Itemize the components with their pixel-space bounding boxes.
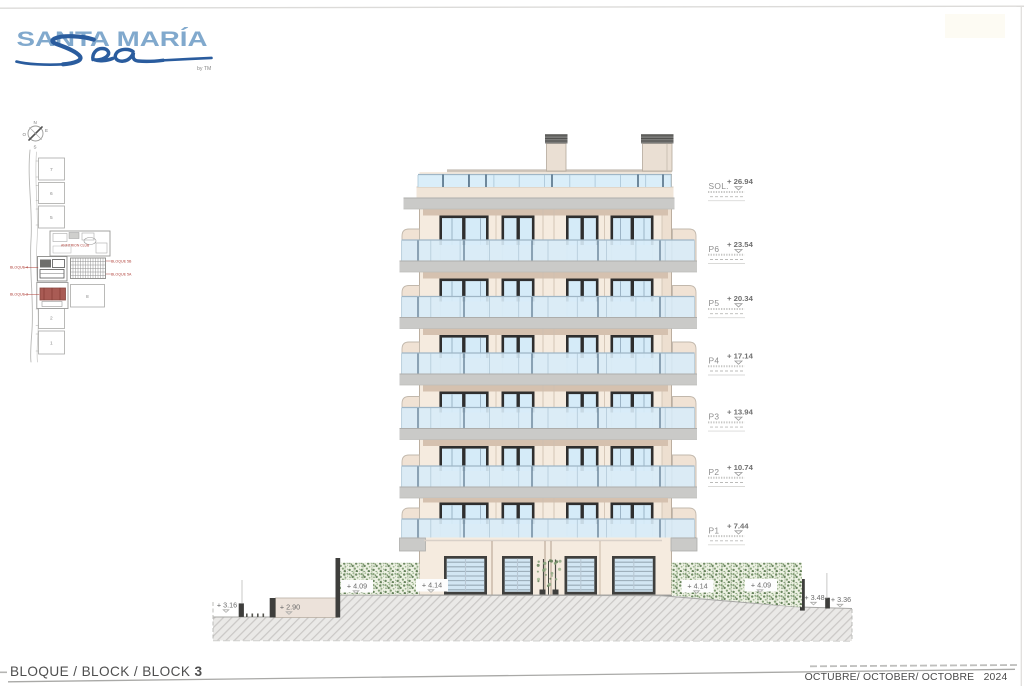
svg-text:+ 3.16: + 3.16 bbox=[217, 601, 237, 610]
svg-text:BLOQUE 3: BLOQUE 3 bbox=[10, 293, 28, 297]
svg-text:O: O bbox=[23, 132, 27, 137]
svg-text:P3: P3 bbox=[709, 412, 720, 422]
svg-text:7: 7 bbox=[50, 167, 53, 173]
svg-text:SANTA MARÍA: SANTA MARÍA bbox=[17, 26, 208, 51]
svg-text:5: 5 bbox=[50, 215, 53, 221]
svg-text:+ 3.48: + 3.48 bbox=[804, 593, 824, 602]
svg-text:N: N bbox=[34, 120, 37, 125]
svg-text:by TM: by TM bbox=[197, 66, 211, 72]
svg-text:+ 4.09: + 4.09 bbox=[751, 581, 771, 590]
svg-text:+ 4.14: + 4.14 bbox=[422, 581, 442, 590]
svg-text:+ 10.74: + 10.74 bbox=[727, 463, 754, 472]
svg-text:+ 2.90: + 2.90 bbox=[280, 603, 300, 612]
svg-text:P1: P1 bbox=[709, 525, 720, 535]
svg-text:P6: P6 bbox=[709, 244, 720, 254]
svg-text:P4: P4 bbox=[709, 356, 720, 366]
svg-text:P5: P5 bbox=[709, 298, 720, 308]
svg-text:+ 20.34: + 20.34 bbox=[727, 294, 754, 303]
svg-text:BLOQUE / BLOCK / BLOCK 3: BLOQUE / BLOCK / BLOCK 3 bbox=[10, 664, 202, 679]
svg-text:+ 17.14: + 17.14 bbox=[727, 352, 754, 361]
svg-text:ANFITRION CLUB: ANFITRION CLUB bbox=[61, 244, 90, 248]
svg-text:S: S bbox=[34, 145, 37, 150]
svg-text:SOL.: SOL. bbox=[709, 181, 729, 191]
svg-text:+ 3.36: + 3.36 bbox=[831, 595, 851, 604]
svg-text:1: 1 bbox=[50, 341, 53, 347]
svg-text:+ 4.09: + 4.09 bbox=[347, 582, 367, 591]
svg-text:BLOQUE 4: BLOQUE 4 bbox=[10, 266, 28, 270]
svg-text:P2: P2 bbox=[709, 467, 720, 477]
svg-text:E: E bbox=[45, 128, 48, 133]
svg-text:6: 6 bbox=[50, 191, 53, 197]
svg-text:+ 7.44: + 7.44 bbox=[727, 521, 749, 530]
svg-text:+ 13.94: + 13.94 bbox=[727, 408, 754, 417]
svg-text:+ 23.54: + 23.54 bbox=[727, 240, 754, 249]
svg-text:+ 26.94: + 26.94 bbox=[727, 177, 754, 186]
svg-text:OCTUBRE/ OCTOBER/ OCTOBRE 20: OCTUBRE/ OCTOBER/ OCTOBRE 2024 bbox=[805, 672, 1008, 683]
svg-text:2: 2 bbox=[50, 315, 53, 321]
svg-text:+ 4.14: + 4.14 bbox=[687, 582, 707, 591]
svg-text:8: 8 bbox=[86, 294, 89, 300]
svg-text:BLOQUE 5B: BLOQUE 5B bbox=[111, 260, 132, 264]
svg-text:BLOQUE 5A: BLOQUE 5A bbox=[111, 273, 132, 277]
